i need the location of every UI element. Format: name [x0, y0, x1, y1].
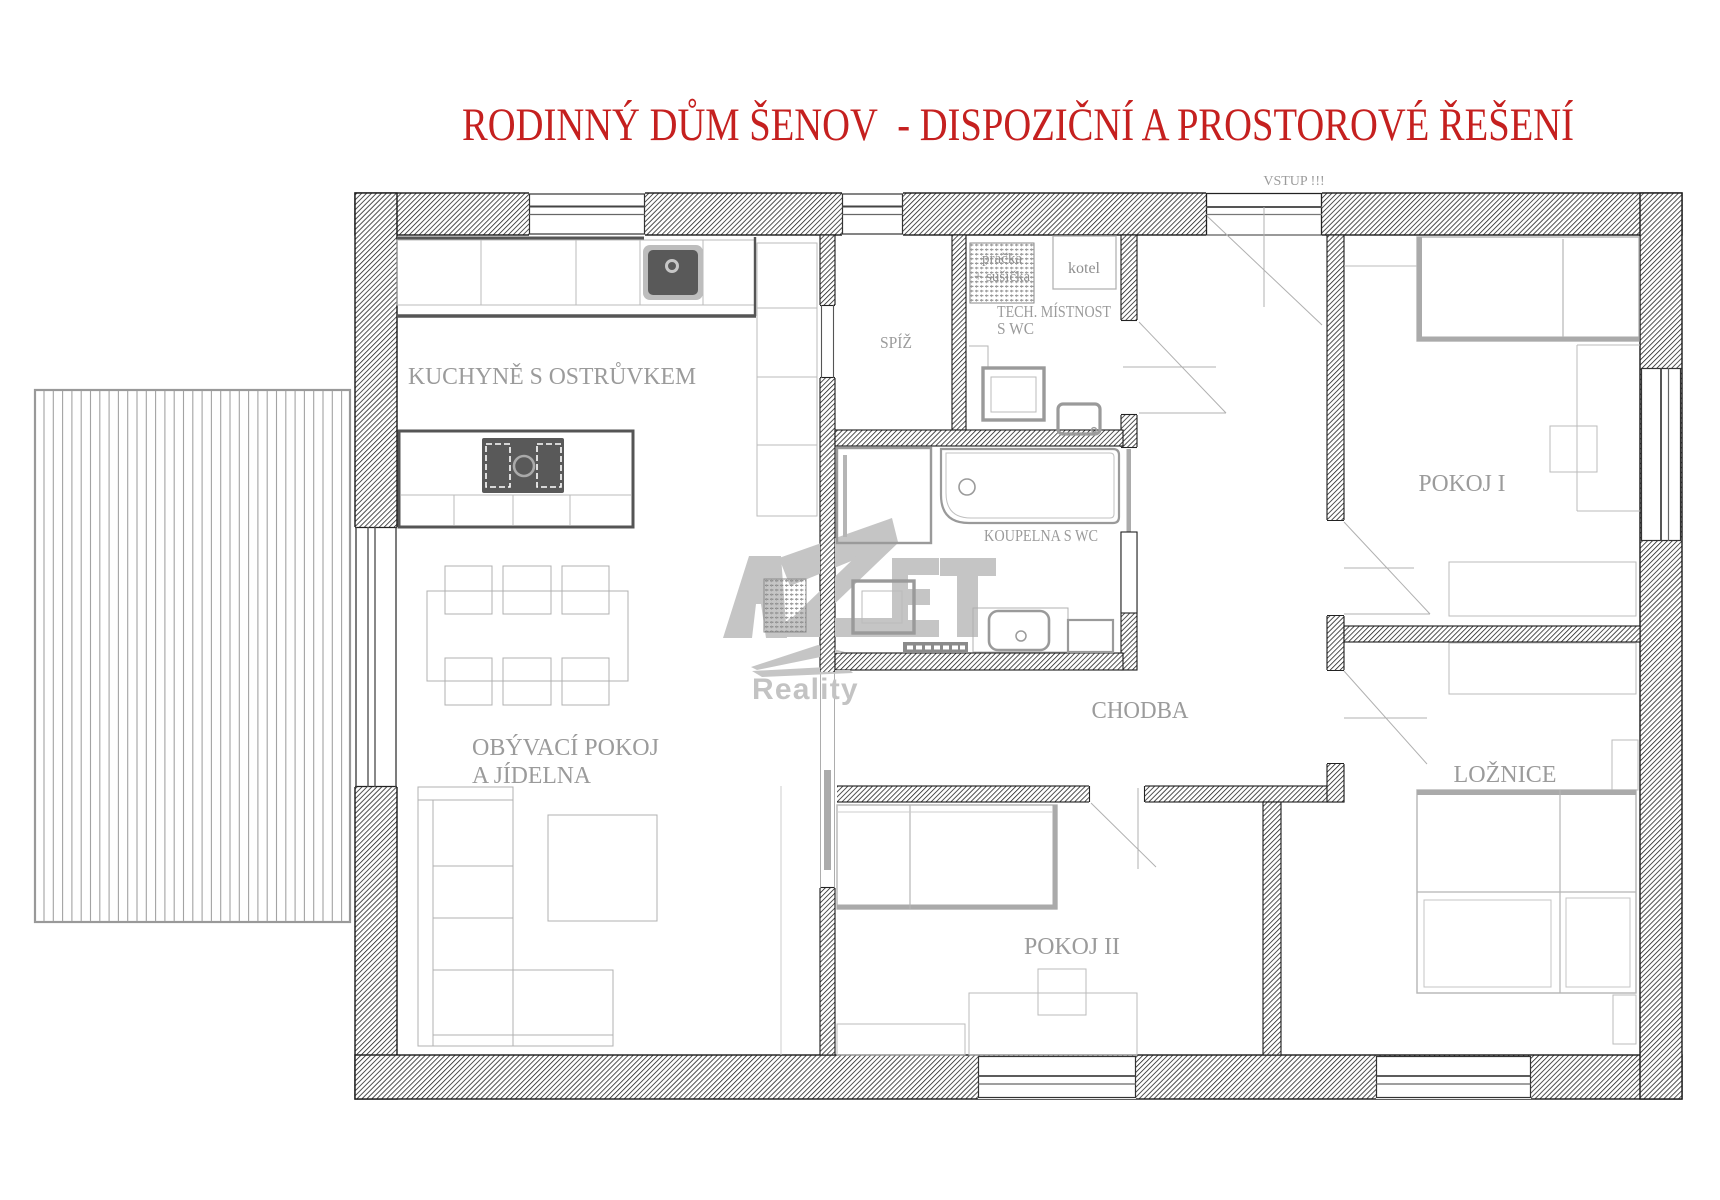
svg-text:POKOJ I: POKOJ I: [1419, 471, 1506, 497]
svg-text:RODINNÝ DŮM ŠENOV - DISPOZIČN: RODINNÝ DŮM ŠENOV - DISPOZIČNÍ A PROSTOR…: [462, 98, 1574, 151]
svg-text:kotel: kotel: [1068, 260, 1101, 277]
svg-text:KOUPELNA S WC: KOUPELNA S WC: [984, 526, 1098, 545]
svg-text:A JÍDELNA: A JÍDELNA: [472, 763, 592, 789]
svg-text:SPÍŽ: SPÍŽ: [880, 333, 912, 352]
svg-text:LOŽNICE: LOŽNICE: [1454, 762, 1557, 788]
svg-text:POKOJ II: POKOJ II: [1024, 934, 1120, 960]
svg-text:pračka: pračka: [982, 251, 1022, 267]
svg-text:Reality: Reality: [752, 673, 859, 706]
svg-text:KUCHYNĚ S OSTRŮVKEM: KUCHYNĚ S OSTRŮVKEM: [408, 363, 696, 390]
svg-text:S WC: S WC: [997, 319, 1034, 338]
svg-text:CHODBA: CHODBA: [1092, 698, 1190, 724]
svg-text:+ sušička: + sušička: [974, 269, 1031, 285]
svg-text:VSTUP !!!: VSTUP !!!: [1263, 174, 1324, 189]
svg-text:OBÝVACÍ POKOJ: OBÝVACÍ POKOJ: [472, 735, 659, 761]
